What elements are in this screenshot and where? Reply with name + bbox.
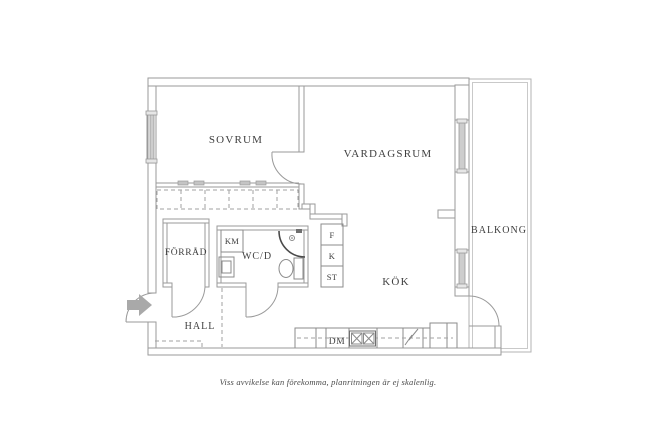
disclaimer-caption: Viss avvikelse kan förekomma, planritnin… (220, 377, 437, 387)
room-label-forrad: FÖRRÅD (165, 246, 207, 258)
doors (126, 152, 499, 326)
door-forrad (172, 287, 205, 317)
label-st: ST (327, 272, 338, 282)
shower-icon (279, 229, 305, 257)
sink-symbol (350, 331, 376, 346)
label-km: KM (225, 236, 239, 246)
toilet-icon (279, 258, 303, 279)
label-k: K (329, 251, 336, 261)
balcony-outline (469, 79, 531, 352)
wardrobe-sovrum (156, 181, 299, 209)
room-label-balkong: BALKONG (471, 225, 527, 236)
floor-plan-page: SOVRUM VARDAGSRUM BALKONG KÖK FÖRRÅD WC/… (0, 0, 652, 435)
door-balcony (469, 296, 499, 326)
entrance-arrow-icon (127, 294, 152, 316)
room-label-sovrum: SOVRUM (209, 134, 263, 146)
label-dm: DM (329, 337, 346, 347)
label-f: F (329, 230, 334, 240)
room-label-hall: HALL (185, 321, 216, 332)
room-label-wcd: WC/D (242, 251, 272, 262)
door-sovrum (272, 152, 302, 184)
hall-closet (155, 341, 202, 348)
kitchen-counter (295, 323, 457, 348)
floor-plan-canvas: SOVRUM VARDAGSRUM BALKONG KÖK FÖRRÅD WC/… (0, 0, 652, 435)
room-label-kok: KÖK (382, 276, 409, 288)
door-wcd (246, 287, 278, 317)
stove-symbol (405, 329, 418, 345)
room-label-vardagsrum: VARDAGSRUM (344, 148, 433, 160)
